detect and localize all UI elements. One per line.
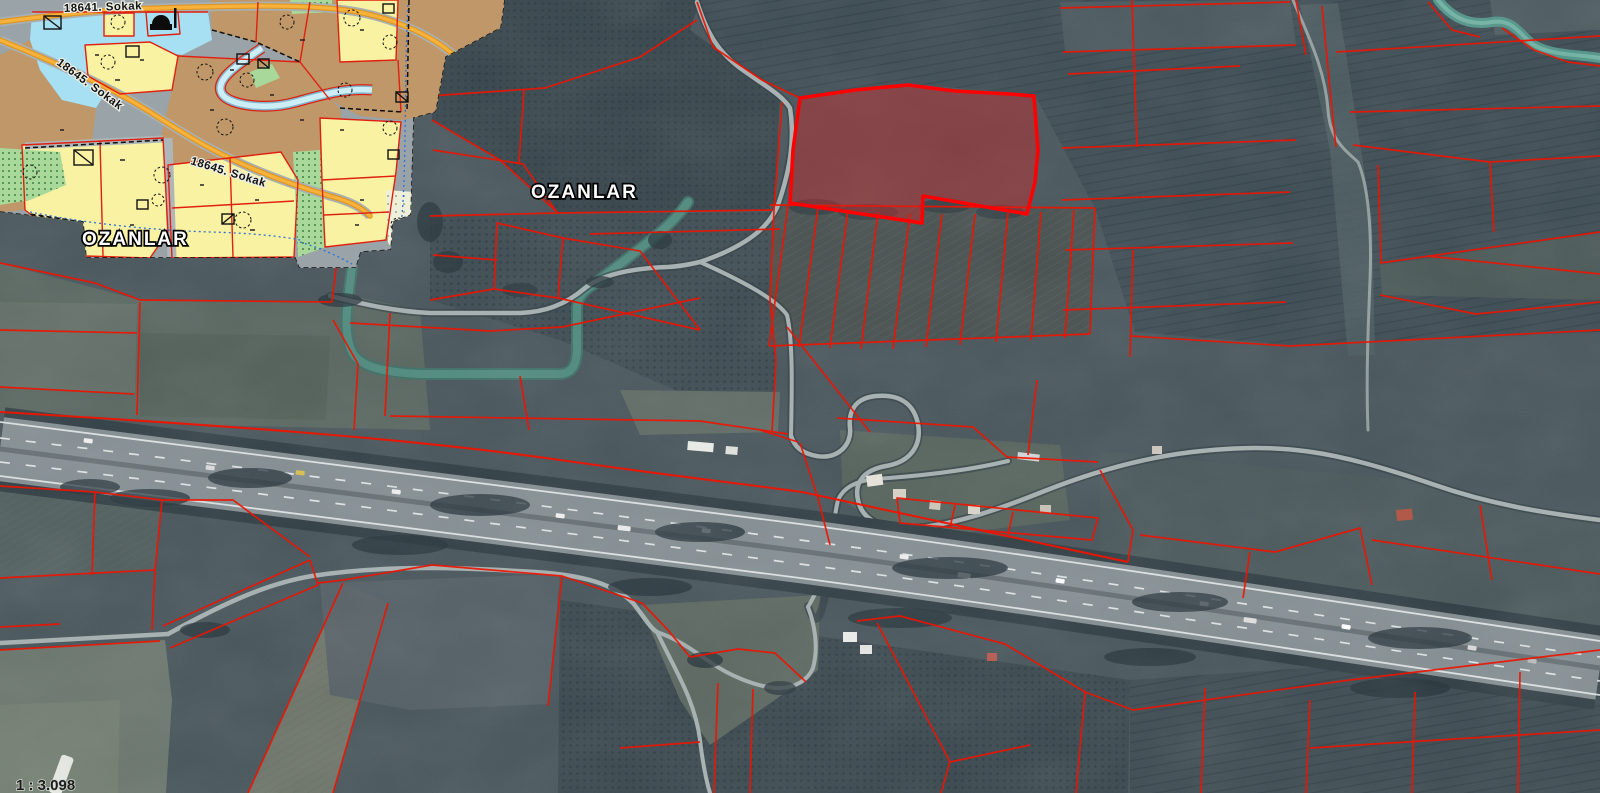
scale-ratio-text: 1 : 3.098 bbox=[16, 777, 75, 793]
map-viewport[interactable]: 18641. Sokak 18645. Sokak 18645. Sokak O… bbox=[0, 0, 1600, 793]
map-canvas[interactable]: 18641. Sokak 18645. Sokak 18645. Sokak O… bbox=[0, 0, 1600, 793]
place-label-ozanlar-east: OZANLAR bbox=[531, 182, 638, 203]
selected-parcel[interactable] bbox=[790, 85, 1038, 223]
place-label-ozanlar-west: OZANLAR bbox=[82, 229, 189, 250]
